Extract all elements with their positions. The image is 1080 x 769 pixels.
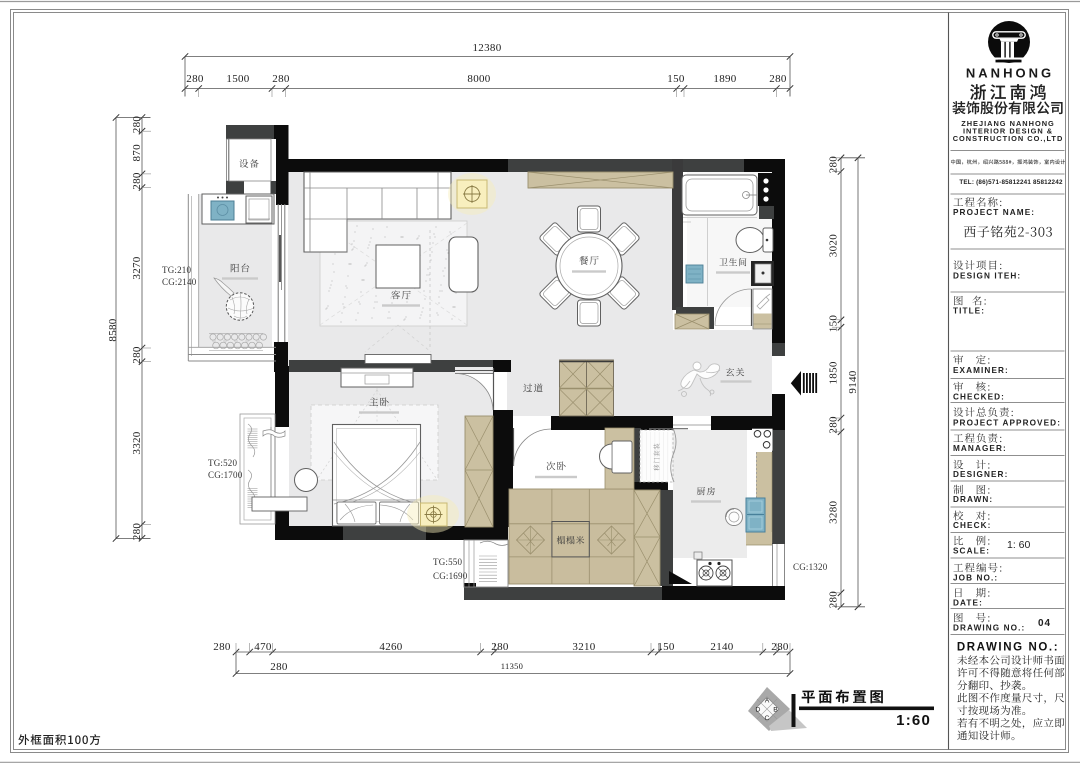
svg-text:DRAWING NO.:: DRAWING NO.: (953, 624, 1025, 633)
svg-text:3210: 3210 (572, 641, 595, 653)
svg-text:B: B (773, 706, 778, 713)
svg-text:3020: 3020 (828, 234, 840, 257)
svg-text:CG:1690: CG:1690 (433, 571, 468, 581)
svg-text:280: 280 (186, 73, 204, 85)
svg-text:150: 150 (657, 641, 675, 653)
svg-text:DESIGNER:: DESIGNER: (953, 470, 1008, 479)
svg-text:280: 280 (270, 661, 288, 673)
svg-text:1850: 1850 (828, 361, 840, 384)
svg-text:1890: 1890 (713, 73, 736, 85)
svg-text:1:60: 1:60 (896, 712, 931, 729)
svg-text:CG:1320: CG:1320 (793, 562, 828, 572)
svg-text:12380: 12380 (473, 42, 502, 54)
svg-text:8000: 8000 (467, 73, 490, 85)
svg-text:TG:520: TG:520 (208, 458, 237, 468)
svg-text:280: 280 (131, 116, 143, 134)
svg-text:280: 280 (828, 416, 840, 434)
svg-text:CONSTRUCTION CO.,LTD: CONSTRUCTION CO.,LTD (953, 134, 1064, 143)
svg-text:280: 280 (213, 641, 231, 653)
svg-text:4260: 4260 (379, 641, 402, 653)
svg-text:EXAMINER:: EXAMINER: (953, 366, 1009, 375)
svg-text:9140: 9140 (847, 370, 859, 393)
svg-text:DRAWING NO.:: DRAWING NO.: (957, 642, 1059, 654)
svg-text:470: 470 (254, 641, 272, 653)
svg-text:3320: 3320 (131, 431, 143, 454)
svg-text:TG:210: TG:210 (162, 265, 191, 275)
svg-text:280: 280 (491, 641, 509, 653)
svg-text:3280: 3280 (828, 501, 840, 524)
svg-text:CHECKED:: CHECKED: (953, 393, 1005, 402)
svg-text:280: 280 (131, 523, 143, 541)
svg-text:CHECK:: CHECK: (953, 521, 991, 530)
svg-text:11350: 11350 (501, 661, 523, 671)
svg-text:150: 150 (828, 315, 840, 333)
svg-text:NANHONG: NANHONG (966, 66, 1054, 81)
svg-text:TEL: (86)571-85812241 8581224: TEL: (86)571-85812241 85812242 (959, 179, 1063, 186)
svg-text:TG:550: TG:550 (433, 557, 462, 567)
svg-text:8580: 8580 (107, 318, 119, 341)
svg-text:1: 60: 1: 60 (1007, 539, 1031, 551)
svg-text:MANAGER:: MANAGER: (953, 444, 1007, 453)
svg-text:TITLE:: TITLE: (953, 307, 985, 316)
svg-text:150: 150 (667, 73, 685, 85)
svg-text:280: 280 (272, 73, 290, 85)
svg-text:04: 04 (1038, 618, 1051, 629)
svg-text:2140: 2140 (710, 641, 733, 653)
svg-text:DESIGN ITEH:: DESIGN ITEH: (953, 272, 1021, 281)
svg-text:C: C (765, 715, 770, 722)
svg-text:CG:2140: CG:2140 (162, 277, 197, 287)
svg-text:280: 280 (828, 591, 840, 609)
svg-text:870: 870 (131, 144, 143, 162)
svg-text:PROJECT APPROVED:: PROJECT APPROVED: (953, 419, 1061, 428)
svg-text:DATE:: DATE: (953, 599, 983, 608)
svg-text:DRAWN:: DRAWN: (953, 495, 993, 504)
svg-text:PROJECT NAME:: PROJECT NAME: (953, 208, 1035, 217)
svg-text:280: 280 (771, 641, 789, 653)
svg-text:280: 280 (769, 73, 787, 85)
svg-text:SCALE:: SCALE: (953, 547, 990, 556)
svg-text:CG:1700: CG:1700 (208, 470, 243, 480)
svg-text:JOB NO.:: JOB NO.: (953, 574, 998, 583)
svg-text:280: 280 (131, 346, 143, 364)
svg-text:3270: 3270 (131, 256, 143, 279)
svg-text:1500: 1500 (226, 73, 249, 85)
svg-text:D: D (756, 706, 761, 713)
svg-text:280: 280 (828, 156, 840, 174)
svg-text:280: 280 (131, 172, 143, 190)
svg-text:A: A (765, 697, 770, 704)
